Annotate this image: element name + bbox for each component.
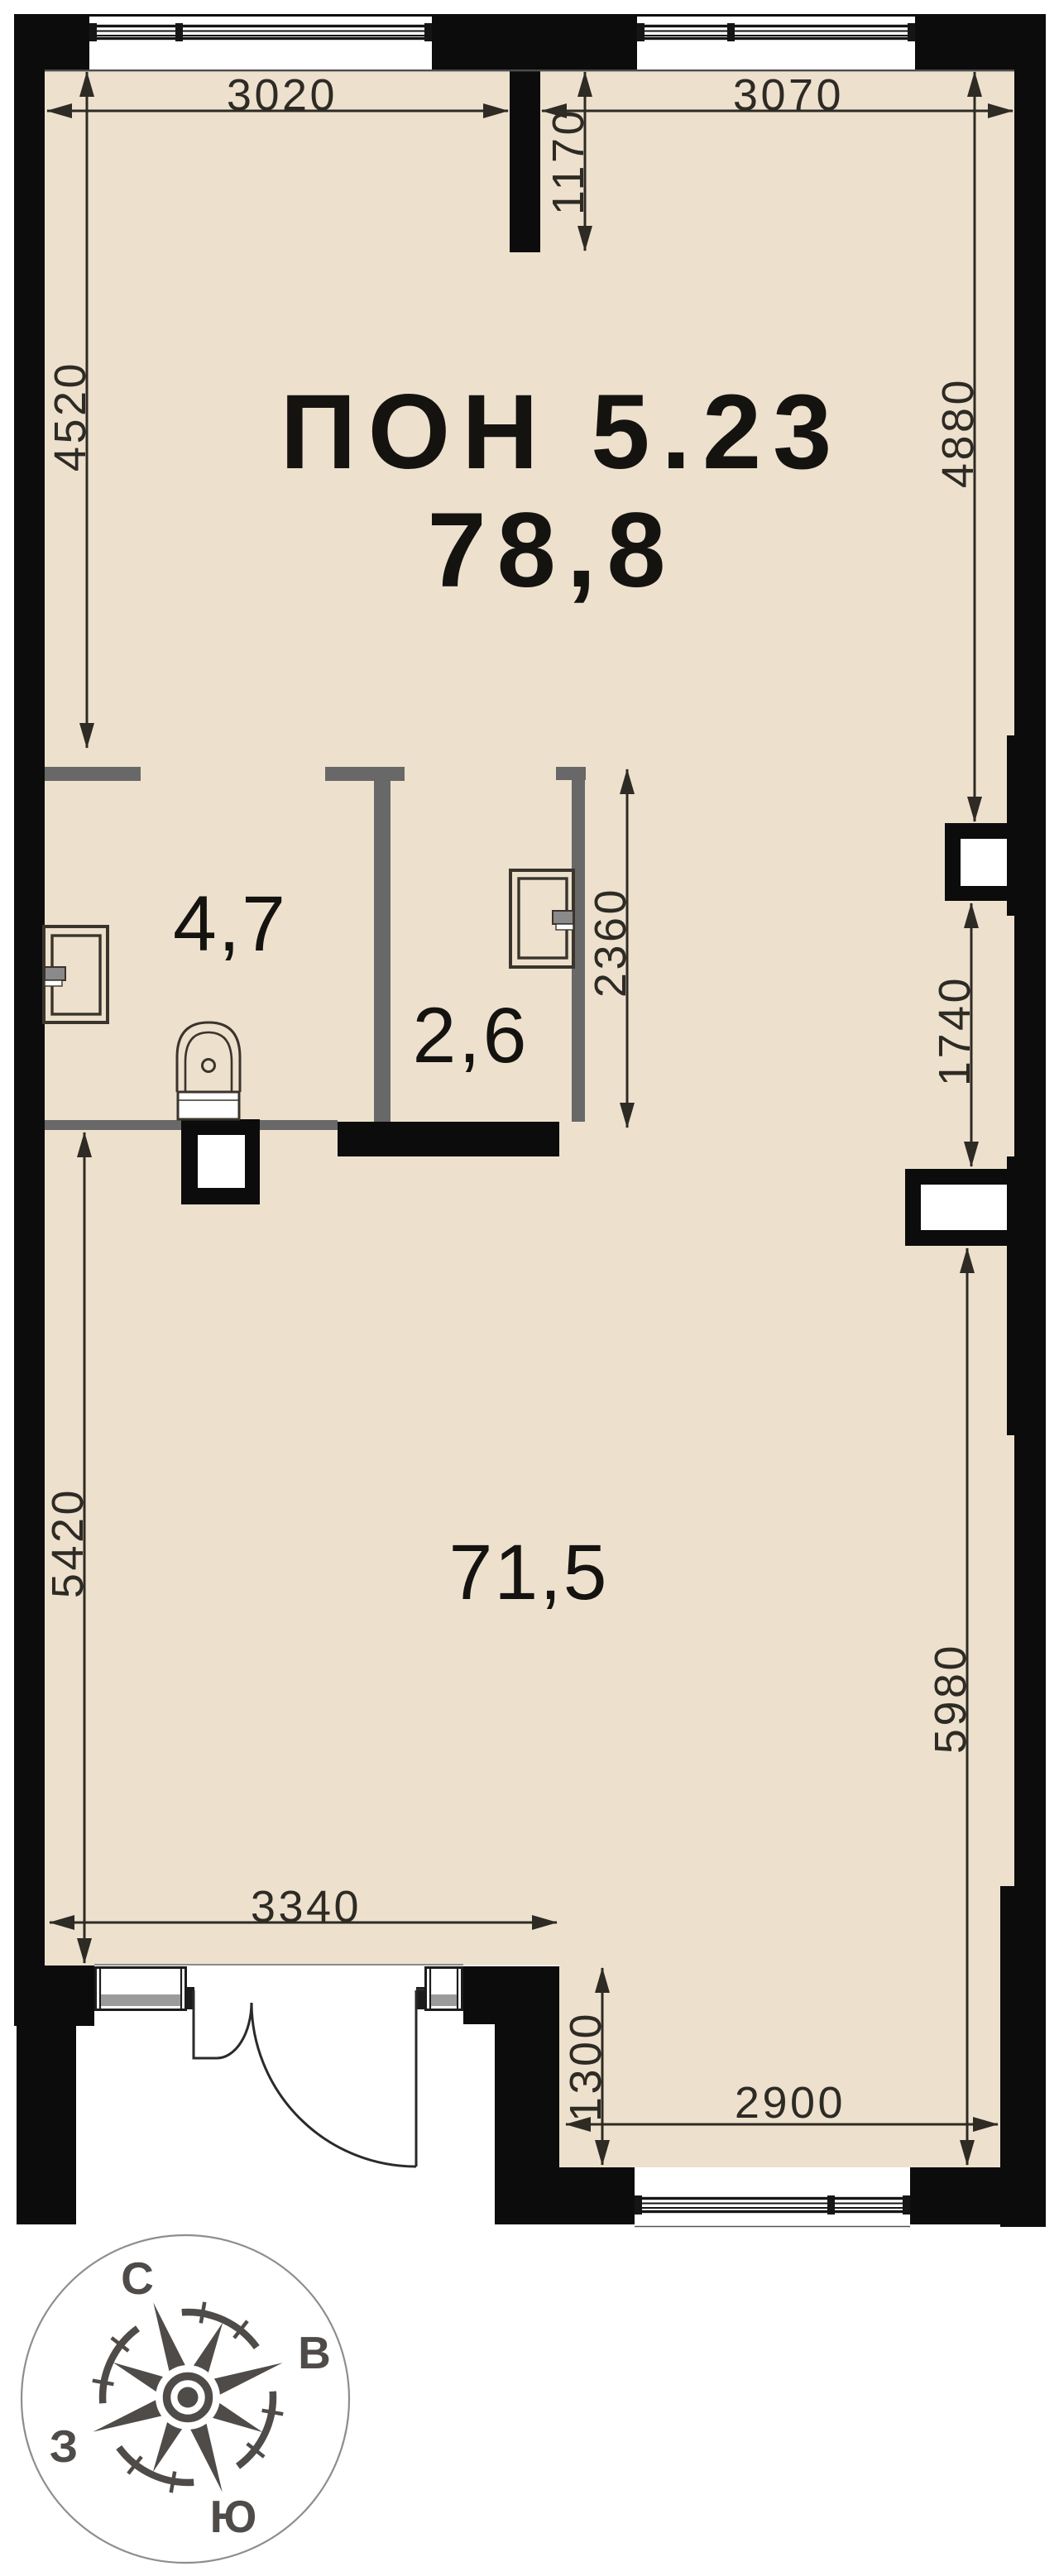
svg-text:5980: 5980 [926,1643,975,1754]
svg-text:С: С [121,2253,154,2304]
svg-text:78,8: 78,8 [427,491,676,610]
svg-text:1170: 1170 [544,108,593,215]
svg-text:ПОН 5.23: ПОН 5.23 [280,373,844,491]
svg-text:2360: 2360 [586,887,635,998]
svg-text:3340: 3340 [251,1882,362,1932]
svg-text:4,7: 4,7 [173,880,287,968]
svg-text:З: З [50,2420,78,2472]
svg-text:2,6: 2,6 [412,992,529,1080]
svg-text:5420: 5420 [43,1487,93,1598]
svg-text:1300: 1300 [561,2011,611,2122]
svg-text:Ю: Ю [210,2491,257,2542]
svg-text:3020: 3020 [227,70,338,120]
svg-text:71,5: 71,5 [449,1529,609,1616]
svg-text:2900: 2900 [735,2078,846,2128]
svg-text:В: В [298,2327,331,2378]
svg-text:4520: 4520 [46,361,95,472]
svg-text:1740: 1740 [930,975,980,1086]
svg-text:4880: 4880 [933,377,983,488]
svg-text:3070: 3070 [733,70,844,120]
